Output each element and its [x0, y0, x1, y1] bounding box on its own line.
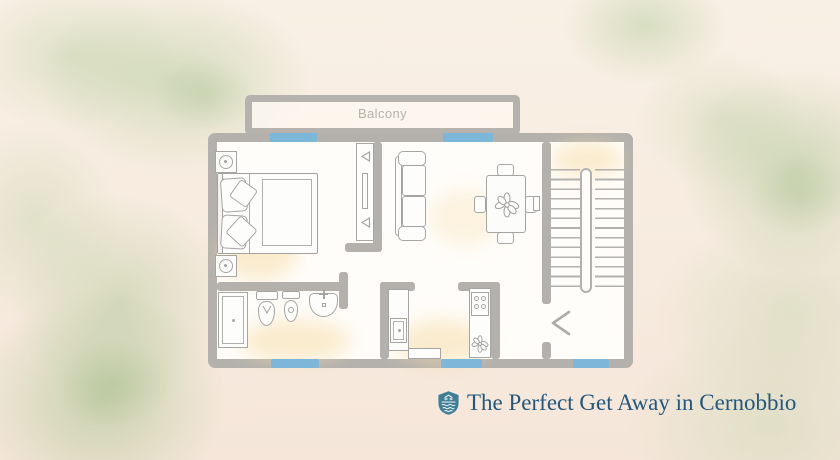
balcony-label: Balcony	[245, 106, 520, 121]
dining-chair-icon	[474, 196, 486, 213]
sink-drain	[398, 329, 401, 332]
sofa-cushion	[402, 165, 426, 196]
kitchen-counter-extension	[408, 348, 441, 359]
stove-counter-icon	[469, 288, 491, 358]
caption-text: The Perfect Get Away in Cernobbio	[467, 390, 796, 416]
sofa-cushion	[402, 196, 426, 227]
sofa-armrest	[398, 151, 426, 166]
window-living-room	[443, 133, 493, 142]
caption: The Perfect Get Away in Cernobbio	[437, 390, 796, 416]
shower-icon	[218, 292, 248, 348]
toilet-detail	[288, 307, 294, 313]
bidet-detail	[261, 305, 273, 315]
window-bathroom	[271, 359, 319, 368]
dining-table-icon	[486, 175, 526, 233]
stair-flight-right	[595, 169, 624, 294]
washbasin-icon	[309, 290, 338, 317]
kitchen-sink	[390, 318, 407, 343]
shield-crest-icon	[437, 390, 460, 416]
window-kitchen	[441, 359, 482, 368]
wall-bathroom-stub	[339, 272, 348, 309]
shower-drain	[232, 319, 235, 322]
toilet-tank	[282, 291, 300, 299]
lamp-icon	[219, 155, 233, 169]
wall-stair-hall-stub	[542, 342, 551, 359]
counter-plant-icon	[471, 335, 489, 353]
kitchen-sink-counter-icon	[388, 289, 409, 351]
nightstand-lamp-icon	[215, 151, 237, 173]
table-plant-icon	[494, 192, 520, 218]
window-stair-hall	[573, 359, 609, 368]
wall-stair-hall	[542, 142, 551, 304]
nightstand-lamp-icon	[215, 255, 237, 277]
double-bed-icon	[217, 173, 318, 254]
dining-chair-icon	[497, 232, 514, 244]
speaker-icon	[359, 216, 372, 229]
media-unit-icon	[356, 143, 374, 241]
bidet-tank	[256, 291, 278, 300]
basin-faucet	[319, 293, 328, 295]
staircase-icon	[551, 168, 624, 294]
wall-bedroom-living-divider	[373, 142, 382, 250]
stove-icon	[471, 292, 489, 316]
tv-icon	[362, 173, 368, 209]
sofa-armrest	[398, 226, 426, 241]
watercolor-floor-plan-scene: Balcony	[0, 0, 840, 460]
stair-handrail	[580, 168, 592, 293]
speaker-icon	[359, 150, 372, 163]
bidet-icon	[256, 291, 278, 327]
toilet-icon	[282, 291, 300, 323]
wall-bedroom-door-stub	[345, 243, 382, 252]
sofa-icon	[395, 151, 427, 241]
wall-kitchen-right	[491, 282, 500, 359]
basin-drain	[322, 303, 326, 307]
sofa-back	[395, 156, 402, 236]
window-bedroom	[270, 133, 317, 142]
lamp-icon	[219, 259, 233, 273]
door-swing-icon	[549, 309, 573, 337]
light-switch-icon	[533, 196, 540, 211]
stair-flight-left	[551, 169, 580, 294]
bed-sheet	[262, 179, 312, 246]
